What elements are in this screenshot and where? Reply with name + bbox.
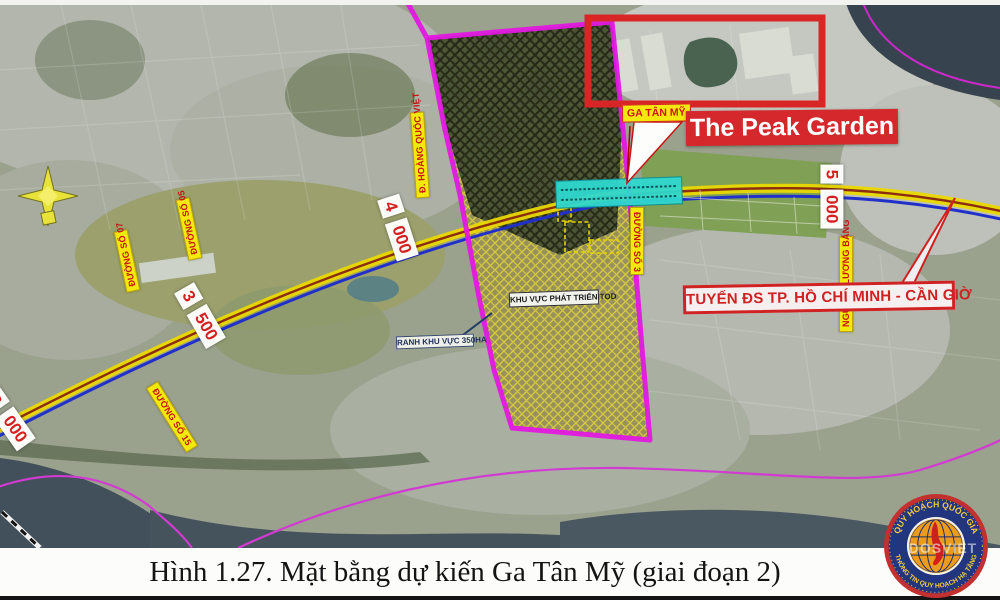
meter-value: 000 <box>820 190 843 228</box>
station-platform <box>556 177 683 208</box>
figure-caption: Hình 1.27. Mặt bằng dự kiến Ga Tân Mỹ (g… <box>0 548 1000 596</box>
watermark-text: DOSVIET <box>893 540 993 556</box>
rail-line-label: TUYẾN ĐS TP. HỒ CHÍ MINH - CẦN GIỜ <box>683 281 955 315</box>
peak-garden-label: The Peak Garden <box>686 109 898 146</box>
figure: Đ. HOÀNG QUỐC VIỆT ĐƯỜNG SỐ 07 ĐƯỜNG SỐ … <box>0 0 1000 600</box>
km-value: 5 <box>820 165 843 184</box>
area-boundary-label: RANH KHU VỰC 350HA <box>396 334 474 350</box>
station-label: GA TÂN MỸ <box>622 103 691 122</box>
top-edge-line <box>0 0 1000 5</box>
map-area: Đ. HOÀNG QUỐC VIỆT ĐƯỜNG SỐ 07 ĐƯỜNG SỐ … <box>0 0 1000 548</box>
street-label-duong-so-3: ĐƯỜNG SỐ 3 <box>630 207 644 275</box>
tod-area-label: KHU VỰC PHÁT TRIỂN TOD <box>509 289 599 307</box>
km-marker-5-000: 5 000 <box>820 165 843 229</box>
caption-bar: Hình 1.27. Mặt bằng dự kiến Ga Tân Mỹ (g… <box>0 548 1000 600</box>
